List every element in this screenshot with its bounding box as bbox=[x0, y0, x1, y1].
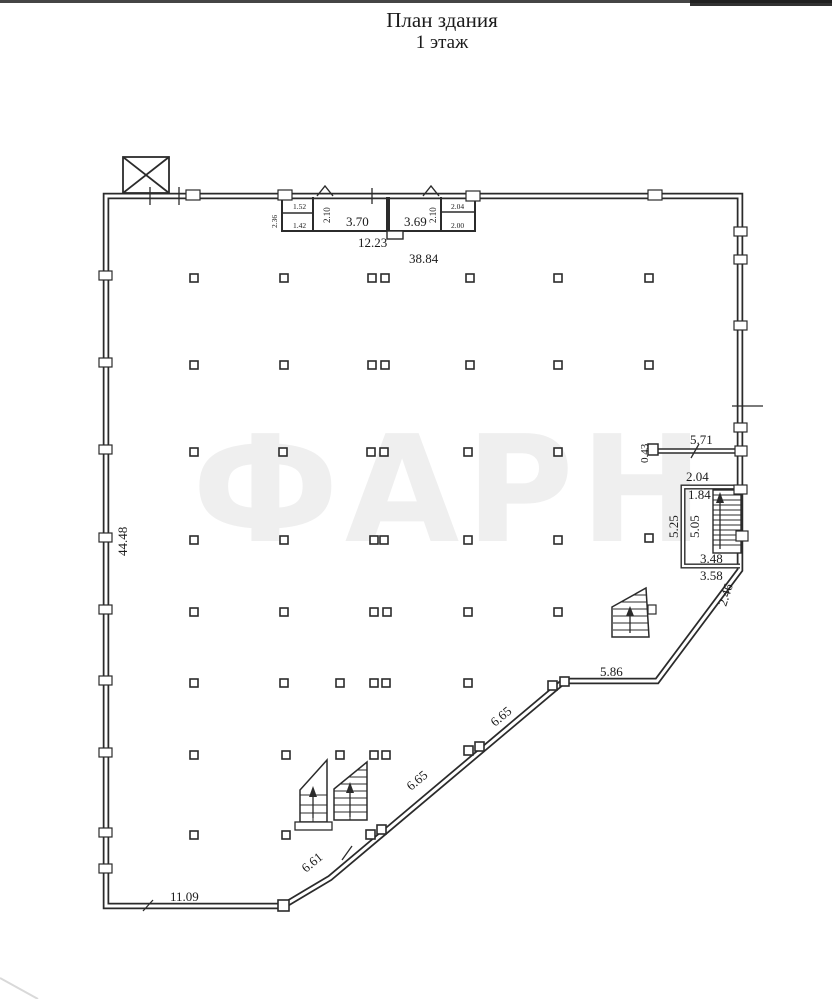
column bbox=[280, 608, 288, 616]
dim-room-left-width: 2.36 bbox=[270, 215, 279, 228]
dim-stair-bottom-inner: 3.48 bbox=[700, 551, 723, 566]
dim-room-left-upper: 1.52 bbox=[293, 202, 306, 211]
dim-stair-side-outer: 5.25 bbox=[666, 515, 681, 538]
column bbox=[279, 448, 287, 456]
dim-room-left-lower: 1.42 bbox=[293, 221, 306, 230]
column bbox=[368, 361, 376, 369]
column bbox=[282, 751, 290, 759]
column bbox=[381, 361, 389, 369]
dim-diag-lower: 6.61 bbox=[298, 849, 325, 875]
column bbox=[554, 274, 562, 282]
column bbox=[336, 679, 344, 687]
column bbox=[464, 679, 472, 687]
dim-notch: 5.86 bbox=[600, 664, 623, 679]
column bbox=[383, 608, 391, 616]
column bbox=[282, 831, 290, 839]
column bbox=[280, 679, 288, 687]
column bbox=[280, 274, 288, 282]
column bbox=[554, 608, 562, 616]
wall-column bbox=[377, 825, 386, 834]
outer-wall bbox=[106, 196, 740, 906]
dim-room1-width: 3.70 bbox=[346, 214, 369, 229]
dim-stair-bottom-outer: 3.58 bbox=[700, 568, 723, 583]
dim-stair-top-inner: 1.84 bbox=[688, 487, 711, 502]
dim-stair-side-inner: 5.05 bbox=[687, 515, 702, 538]
column bbox=[380, 536, 388, 544]
xbox-vent-shaft bbox=[123, 157, 169, 193]
column bbox=[190, 536, 198, 544]
wall-column bbox=[464, 746, 473, 755]
dim-room2-width: 3.69 bbox=[404, 214, 427, 229]
column bbox=[645, 361, 653, 369]
column bbox=[645, 274, 653, 282]
wall-column bbox=[475, 742, 484, 751]
column bbox=[464, 448, 472, 456]
column bbox=[190, 274, 198, 282]
column bbox=[190, 361, 198, 369]
column bbox=[466, 274, 474, 282]
dim-room2-depth: 2.10 bbox=[428, 207, 438, 223]
column bbox=[370, 679, 378, 687]
dim-top-total: 38.84 bbox=[409, 251, 439, 266]
column bbox=[380, 448, 388, 456]
stair-right bbox=[334, 762, 367, 820]
column bbox=[280, 536, 288, 544]
column bbox=[464, 536, 472, 544]
column bbox=[466, 361, 474, 369]
stair-left bbox=[295, 760, 332, 830]
column bbox=[367, 448, 375, 456]
dim-ledge-offset: 0.43 bbox=[639, 443, 651, 463]
column bbox=[381, 274, 389, 282]
wall-column bbox=[560, 677, 569, 686]
column bbox=[382, 679, 390, 687]
column bbox=[554, 536, 562, 544]
column-grid bbox=[190, 274, 653, 911]
column bbox=[190, 679, 198, 687]
column bbox=[370, 608, 378, 616]
column bbox=[645, 534, 653, 542]
dim-room-right-upper: 2.04 bbox=[451, 202, 464, 211]
column bbox=[554, 361, 562, 369]
column bbox=[190, 751, 198, 759]
dim-stair-top-outer: 2.04 bbox=[686, 469, 709, 484]
column bbox=[464, 608, 472, 616]
floor-plan-canvas: 44.48 12.23 38.84 2.36 1.52 1.42 2.10 3.… bbox=[0, 0, 832, 999]
column bbox=[370, 536, 378, 544]
dim-corner-diag: 2.46 bbox=[715, 581, 736, 608]
column bbox=[368, 274, 376, 282]
column bbox=[280, 361, 288, 369]
column bbox=[336, 751, 344, 759]
scanned-floor-plan-page: ФАРН План здания 1 этаж bbox=[0, 0, 832, 999]
column bbox=[370, 751, 378, 759]
dim-room-right-lower: 2.00 bbox=[451, 221, 464, 230]
dim-ticks bbox=[143, 187, 763, 911]
dim-room1-depth: 2.10 bbox=[322, 207, 332, 223]
stair-mid bbox=[612, 588, 656, 637]
column bbox=[382, 751, 390, 759]
dim-top-inner: 12.23 bbox=[358, 235, 387, 250]
wall-column bbox=[548, 681, 557, 690]
column bbox=[554, 448, 562, 456]
dim-left-height: 44.48 bbox=[115, 527, 130, 556]
column bbox=[190, 831, 198, 839]
wall-column bbox=[366, 830, 375, 839]
wall-column bbox=[278, 900, 289, 911]
dim-ledge-length: 5.71 bbox=[690, 432, 713, 447]
column bbox=[190, 608, 198, 616]
dim-diag-mid: 6.65 bbox=[403, 767, 430, 793]
column bbox=[190, 448, 198, 456]
dim-bottom-wall: 11.09 bbox=[170, 889, 199, 904]
